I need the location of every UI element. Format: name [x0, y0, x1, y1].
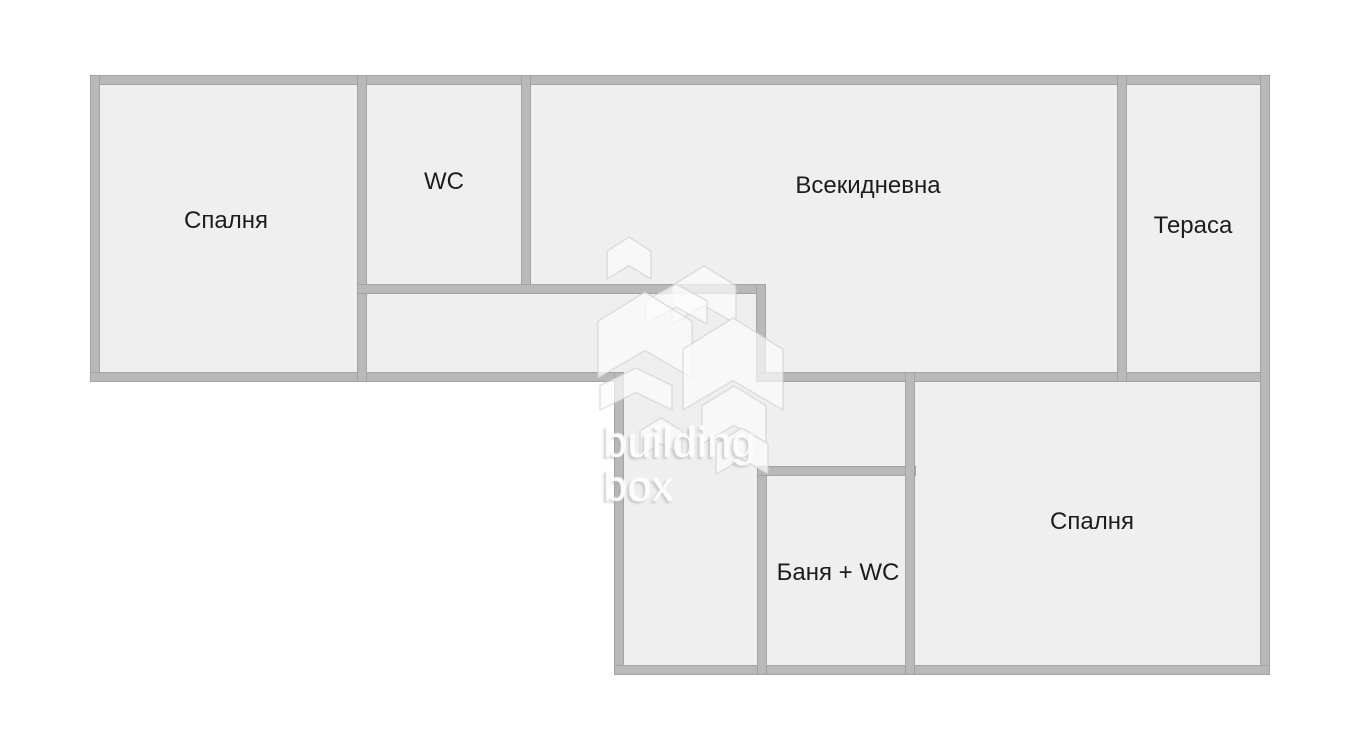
- watermark-line-1: building: [603, 421, 756, 465]
- room-label-bedroom-bottom-right: Спалня: [1050, 508, 1134, 536]
- logo-house-shape: [607, 237, 651, 279]
- terrace-divider-wall: [1117, 75, 1127, 382]
- room-label-bedroom-top-left: Спалня: [184, 207, 268, 235]
- watermark-text: building box: [603, 421, 756, 509]
- room-label-terrace: Тераса: [1154, 212, 1233, 240]
- bedroom1-right-wall: [357, 75, 367, 382]
- wc-right-wall: [521, 75, 531, 294]
- outer-wall-left: [90, 75, 100, 382]
- outer-wall-bottom: [614, 665, 1270, 675]
- watermark-line-2: box: [603, 465, 756, 509]
- outer-wall-top: [90, 75, 1270, 85]
- logo-chevron-shape: [600, 368, 672, 410]
- room-label-wc: WC: [424, 168, 464, 196]
- mid-horizontal-wall: [756, 372, 1270, 382]
- room-label-living-room: Всекидневна: [795, 172, 940, 200]
- outer-wall-right: [1260, 75, 1270, 675]
- floor-plan: building box СпалняWCВсекидневнаТерасаБа…: [0, 0, 1352, 740]
- bathroom-left-wall: [757, 466, 767, 675]
- room-label-bathroom-wc: Баня + WC: [777, 559, 900, 587]
- bathroom-right-wall: [905, 372, 915, 675]
